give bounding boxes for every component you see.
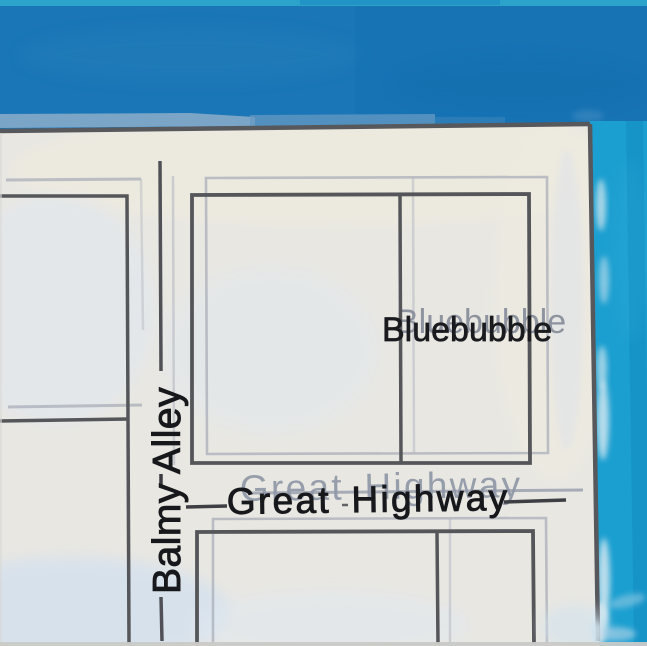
svg-text:Great Highway: Great Highway	[227, 477, 510, 522]
svg-text:Balmy Alley: Balmy Alley	[146, 387, 189, 594]
svg-text:Bluebubble: Bluebubble	[382, 311, 552, 349]
